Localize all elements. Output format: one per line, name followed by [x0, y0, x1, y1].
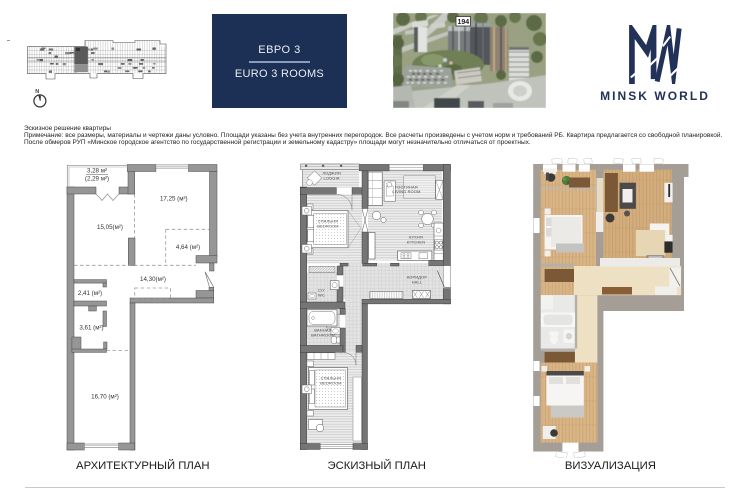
svg-text:N: N [35, 89, 39, 95]
svg-text:(2,29 м²): (2,29 м²) [85, 175, 109, 182]
svg-text:194: 194 [457, 19, 469, 26]
svg-text:14,30(м²): 14,30(м²) [140, 276, 166, 283]
svg-text:17,25 (м²): 17,25 (м²) [160, 196, 188, 203]
svg-text:2,41 (м²): 2,41 (м²) [78, 290, 102, 297]
svg-text:3,61 (м²): 3,61 (м²) [79, 324, 103, 331]
svg-text:WC: WC [318, 292, 325, 297]
svg-text:4,64 (м²): 4,64 (м²) [176, 244, 200, 251]
svg-text:BEDROOM: BEDROOM [317, 223, 339, 228]
svg-text:BEDROOM: BEDROOM [320, 380, 342, 385]
svg-text:HALL: HALL [412, 279, 423, 284]
svg-text:3,28 м²: 3,28 м² [87, 168, 107, 175]
svg-text:15,05(м²): 15,05(м²) [97, 224, 123, 231]
svg-text:LIVING ROOM: LIVING ROOM [392, 189, 420, 194]
svg-text:BATHROOM: BATHROOM [311, 332, 335, 337]
svg-text:LOGGIA: LOGGIA [324, 175, 340, 180]
svg-text:16,70 (м²): 16,70 (м²) [91, 393, 119, 400]
svg-text:KITCHEN: KITCHEN [407, 239, 425, 244]
